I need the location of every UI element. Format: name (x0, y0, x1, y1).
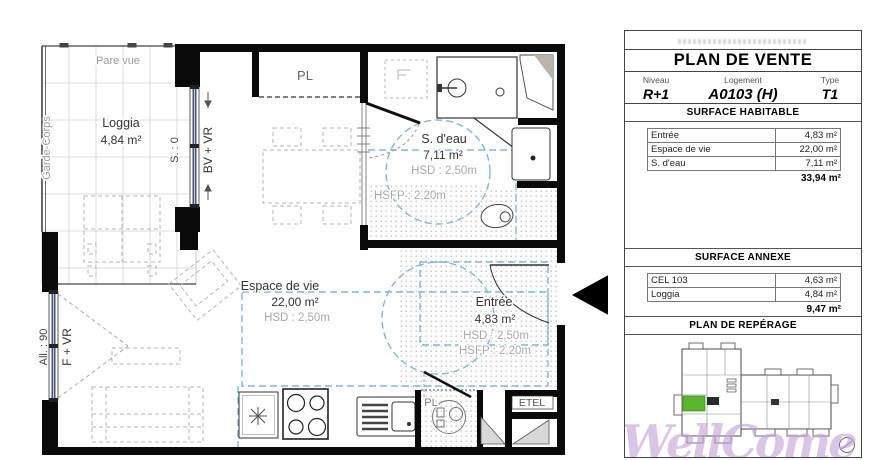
row-value: 4,84 m² (776, 288, 841, 302)
garde-corps-label: Garde-Corps (41, 116, 53, 180)
type-label: Type (799, 75, 861, 85)
surface-habitable-header: SURFACE HABITABLE (625, 104, 861, 122)
pl-closet-label: PL (297, 68, 313, 83)
pare-vue-label: Pare vue (96, 55, 140, 67)
entree-hsfp: HSFP : 2,20m (459, 345, 531, 357)
reperage-map: WellCome (625, 335, 861, 457)
loggia-area: 4,84 m² (101, 133, 142, 147)
floor-plan-svg: Pare vue Garde-Corps Loggia 4,84 m² S. :… (0, 0, 608, 460)
entree-name: Entrée (476, 295, 513, 309)
surface-annexe-total: 9,47 m² (647, 304, 841, 315)
sdeau-name: S. d'eau (421, 132, 467, 146)
field-niveau: Niveau R+1 (625, 72, 687, 103)
loggia-tiles (42, 46, 196, 284)
floor-plan: Pare vue Garde-Corps Loggia 4,84 m² S. :… (0, 0, 608, 460)
surface-annexe-header: SURFACE ANNEXE (625, 248, 861, 267)
type-value: T1 (799, 86, 861, 102)
technical-shaft (520, 55, 553, 110)
fridge (239, 392, 278, 438)
panel-top-note (625, 31, 861, 50)
row-label: Espace de vie (648, 143, 776, 157)
bv-vr-label: BV + VR (201, 126, 215, 173)
entree-area: 4,83 m² (475, 312, 516, 326)
reperage-header: PLAN DE REPÉRAGE (625, 316, 861, 335)
table-row: Espace de vie 22,00 m² (648, 143, 841, 157)
espace-area: 22,00 m² (271, 295, 318, 309)
pl-heater-label: PL (424, 397, 437, 409)
panel-title: PLAN DE VENTE (625, 50, 861, 72)
entrance-arrow (572, 273, 608, 317)
sdeau-hsfp: HSFP : 2,20m (374, 190, 446, 202)
row-value: 7,11 m² (776, 157, 841, 171)
surface-habitable-table: Entrée 4,83 m² Espace de vie 22,00 m² S.… (625, 122, 861, 184)
sink (357, 397, 419, 436)
sdeau-area: 7,11 m² (423, 148, 463, 162)
row-label: CEL 103 (648, 274, 776, 288)
table-row: S. d'eau 7,11 m² (648, 157, 841, 171)
niveau-value: R+1 (625, 86, 687, 102)
logement-value: A0103 (H) (687, 86, 799, 103)
row-value: 4,83 m² (776, 129, 841, 143)
field-type: Type T1 (799, 72, 861, 103)
compass-icon (837, 435, 857, 455)
row-value: 4,63 m² (776, 274, 841, 288)
loggia-name: Loggia (102, 116, 140, 130)
hob (283, 389, 328, 439)
unit-fields: Niveau R+1 Logement A0103 (H) Type T1 (625, 72, 861, 104)
site-plan-svg (637, 339, 849, 457)
field-logement: Logement A0103 (H) (687, 72, 799, 103)
surface-habitable-total: 33,94 m² (647, 173, 841, 184)
sale-panel: PLAN DE VENTE Niveau R+1 Logement A0103 … (624, 30, 862, 458)
espace-name: Espace de vie (241, 279, 320, 293)
all-90-label: All. : 90 (38, 329, 50, 366)
table-row: Entrée 4,83 m² (648, 129, 841, 143)
illegible-note (678, 39, 808, 44)
loggia-s0-label: S. : 0 (169, 137, 181, 163)
row-label: S. d'eau (648, 157, 776, 171)
logement-label: Logement (687, 75, 799, 85)
surface-annexe-table: CEL 103 4,63 m² Loggia 4,84 m² 9,47 m² (625, 267, 861, 315)
entree-hsd: HSD : 2,50m (463, 330, 529, 342)
sdeau-hsd: HSD : 2,50m (411, 165, 477, 177)
row-value: 22,00 m² (776, 143, 841, 157)
table-row: CEL 103 4,63 m² (648, 274, 841, 288)
washbasin (512, 128, 550, 180)
f-vr-label: F + VR (60, 328, 74, 366)
etel-label: ETEL (519, 397, 545, 409)
niveau-label: Niveau (625, 75, 687, 85)
row-label: Entrée (648, 129, 776, 143)
espace-hsd: HSD : 2,50m (264, 312, 330, 324)
highlighted-unit (683, 396, 705, 411)
table-row: Loggia 4,84 m² (648, 288, 841, 302)
row-label: Loggia (648, 288, 776, 302)
